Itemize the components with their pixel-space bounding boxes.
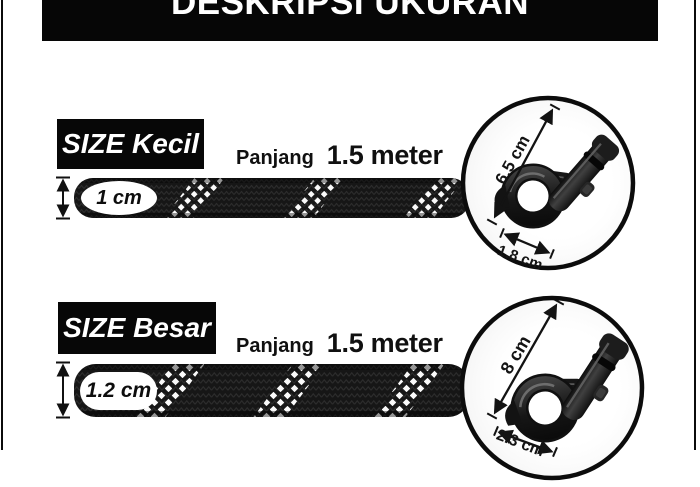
hook-detail-circle-kecil: 6.5 cm 1.8 cm	[459, 94, 637, 272]
size-badge-kecil: SIZE Kecil	[57, 119, 204, 169]
diameter-arrow-icon	[54, 176, 72, 220]
frame-right-line	[694, 0, 696, 450]
diameter-label-besar: 1.2 cm	[80, 372, 157, 410]
title-banner: DESKRIPSI UKURAN	[42, 0, 658, 41]
diameter-value: 1 cm	[96, 187, 142, 210]
length-value: 1.5 meter	[327, 328, 443, 359]
product-size-infographic: { "header": { "title": "DESKRIPSI UKURAN…	[0, 0, 700, 450]
hook-clasp-illustration	[459, 94, 637, 272]
frame-left-line	[1, 0, 3, 450]
size-badge-label: SIZE Besar	[63, 312, 211, 344]
size-badge-besar: SIZE Besar	[58, 302, 216, 354]
length-label: Panjang	[236, 147, 314, 170]
length-label: Panjang	[236, 335, 314, 358]
length-row-besar: Panjang 1.5 meter	[236, 328, 443, 359]
page-title: DESKRIPSI UKURAN	[42, 0, 658, 23]
hook-detail-circle-besar: 8 cm 2.3 cm	[458, 294, 646, 482]
length-row-kecil: Panjang 1.5 meter	[236, 140, 443, 171]
diameter-value: 1.2 cm	[86, 379, 151, 403]
diameter-arrow-icon	[54, 361, 72, 419]
diameter-label-kecil: 1 cm	[81, 181, 157, 215]
size-badge-label: SIZE Kecil	[62, 128, 199, 160]
length-value: 1.5 meter	[327, 140, 443, 171]
hook-clasp-illustration	[458, 294, 646, 482]
